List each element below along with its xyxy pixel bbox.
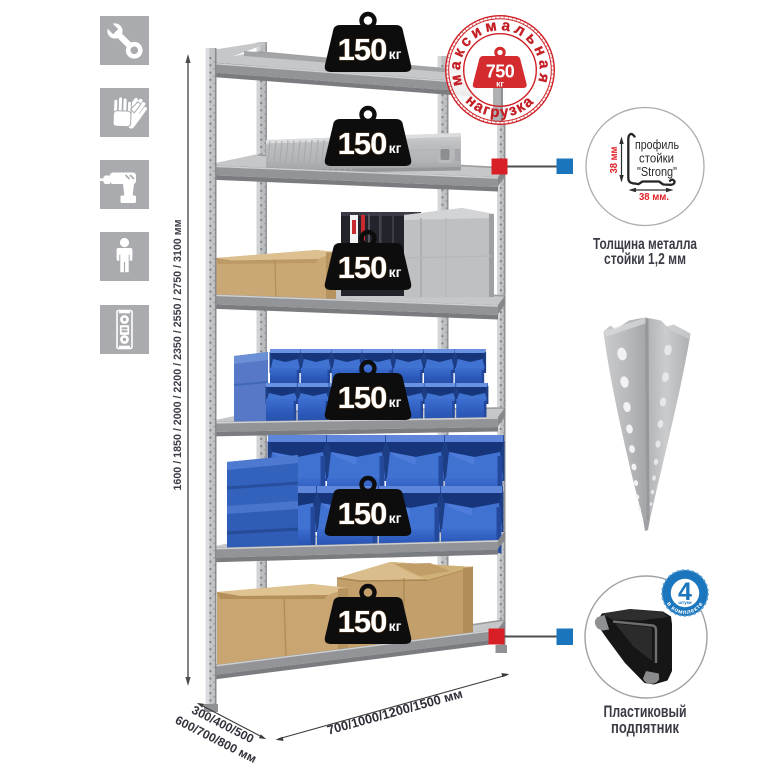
svg-text:150: 150	[338, 496, 387, 531]
svg-text:150: 150	[338, 126, 387, 161]
svg-text:подпятник: подпятник	[611, 719, 680, 737]
svg-text:150: 150	[338, 32, 387, 67]
svg-text:150: 150	[338, 380, 387, 415]
svg-text:кг: кг	[389, 140, 402, 156]
svg-text:кг: кг	[389, 510, 402, 526]
svg-text:150: 150	[338, 250, 387, 285]
svg-text:кг: кг	[389, 46, 402, 62]
svg-text:150: 150	[338, 604, 387, 639]
svg-text:стойки 1,2 мм: стойки 1,2 мм	[604, 251, 686, 268]
svg-text:стойки: стойки	[639, 152, 674, 166]
svg-text:"Strong": "Strong"	[637, 165, 677, 179]
svg-text:кг: кг	[496, 79, 504, 89]
svg-text:кг: кг	[389, 394, 402, 410]
svg-text:1600 / 1850 / 2000 / 2200 / 23: 1600 / 1850 / 2000 / 2200 / 2350 / 2550 …	[172, 220, 184, 491]
svg-text:профиль: профиль	[635, 138, 679, 152]
svg-text:кг: кг	[389, 264, 402, 280]
svg-text:штуки: штуки	[678, 600, 692, 605]
svg-text:38 мм: 38 мм	[608, 146, 620, 173]
svg-text:кг: кг	[389, 618, 402, 634]
svg-text:38 мм.: 38 мм.	[639, 191, 669, 203]
